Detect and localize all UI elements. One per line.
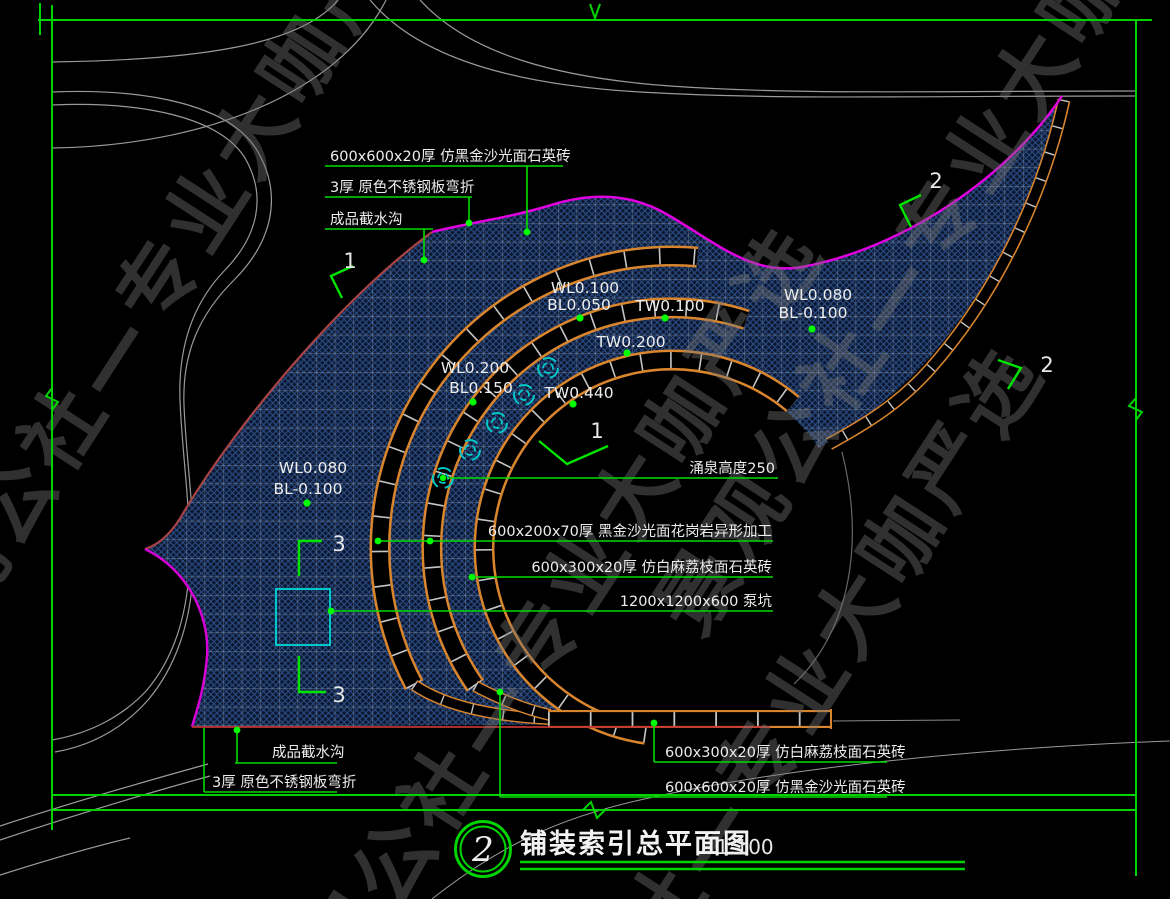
elevation-label: BL0.150 <box>449 379 513 397</box>
elevation-label: TW0.440 <box>543 384 613 402</box>
elevation-label: WL0.080 <box>784 286 852 304</box>
road-edge <box>0 838 130 875</box>
section-marker-number: 2 <box>1040 353 1053 377</box>
callout-label: 600x300x20厚 仿白麻荔枝面石英砖 <box>665 743 906 761</box>
section-marker-1a: 1 <box>331 249 357 298</box>
green-dot <box>440 475 446 481</box>
elevation-label: WL0.080 <box>279 459 347 477</box>
green-dot <box>427 538 434 545</box>
drawing-scale: 1:100 <box>716 835 774 859</box>
elevation-label: BL-0.100 <box>779 304 848 322</box>
green-dot <box>234 727 241 734</box>
elevation-label: WL0.200 <box>441 359 509 377</box>
green-dot <box>661 314 668 321</box>
section-marker-1b: 1 <box>539 419 608 464</box>
callout-label: 600x600x20厚 仿黑金沙光面石英砖 <box>330 147 571 165</box>
callout-label: 600x600x20厚 仿黑金沙光面石英砖 <box>665 778 906 796</box>
green-dot <box>469 398 476 405</box>
green-dot <box>375 538 382 545</box>
road-edge <box>833 720 960 721</box>
callout-label: 成品截水沟 <box>330 211 403 228</box>
callout-label: 成品截水沟 <box>272 744 345 761</box>
green-dot <box>576 314 583 321</box>
green-dot <box>524 229 531 236</box>
callout-label: 600x300x20厚 仿白麻荔枝面石英砖 <box>531 558 772 576</box>
callout-label: 1200x1200x600 泵坑 <box>620 593 772 610</box>
section-marker-number: 3 <box>332 683 345 707</box>
section-marker-number: 2 <box>929 169 942 193</box>
green-angle <box>539 441 608 464</box>
elevation-label: TW0.200 <box>595 333 665 351</box>
green-dot <box>466 220 473 227</box>
green-dot <box>497 689 504 696</box>
green-dot <box>469 574 476 581</box>
road-edge <box>0 776 210 840</box>
elevation-label: BL0.050 <box>547 296 611 314</box>
callout-label: 3厚 原色不锈钢板弯折 <box>330 178 474 196</box>
callout-label: 600x200x70厚 黑金沙光面花岗岩异形加工 <box>488 523 772 540</box>
elevation-label: BL-0.100 <box>274 480 343 498</box>
frame-tick <box>590 4 600 18</box>
callout-label: 3厚 原色不锈钢板弯折 <box>212 773 356 791</box>
paving-plan-canvas: 景观公社—专业大咖严选 景观公社—专业大咖严选 景观公社—专业大咖严选 景观公社… <box>0 0 1170 899</box>
title-block: 2 铺装索引总平面图 1:100 <box>456 822 966 877</box>
green-dot <box>328 608 335 615</box>
green-dot <box>421 257 428 264</box>
callout-label: 涌泉高度250 <box>689 460 775 477</box>
detail-index-number: 2 <box>471 830 494 870</box>
green-dot <box>808 325 815 332</box>
section-marker-number: 1 <box>343 249 356 273</box>
elevation-label: TW0.100 <box>634 297 704 315</box>
section-marker-number: 3 <box>332 532 345 556</box>
elevation-label: WL0.100 <box>551 279 619 297</box>
cad-paving-plan-screenshot: 景观公社—专业大咖严选 景观公社—专业大咖严选 景观公社—专业大咖严选 景观公社… <box>0 0 1170 899</box>
section-marker-number: 1 <box>590 419 603 443</box>
green-dot <box>651 720 658 727</box>
green-dot <box>303 499 310 506</box>
